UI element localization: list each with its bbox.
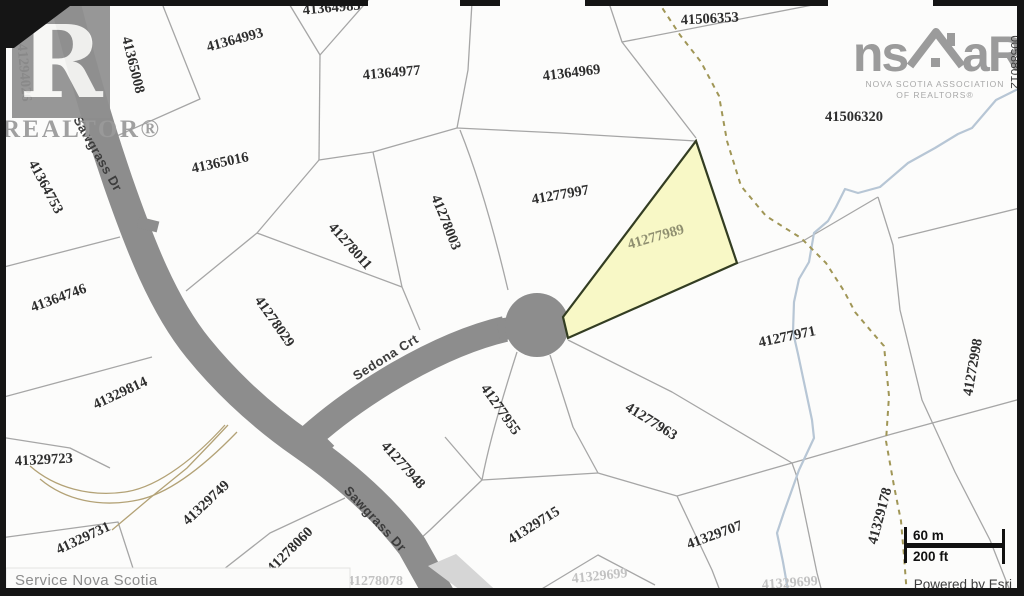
parcel-map: 41294026 41365008 41364993 41364985 4136…	[0, 0, 1024, 596]
cul-de-sac-bulb	[505, 293, 569, 357]
parcel-label: 41329723	[14, 450, 73, 469]
nsar-logo: ns aR NOVA SCOTIA ASSOCIATION OF REALTOR…	[853, 26, 1024, 100]
nsar-tagline-line1: NOVA SCOTIA ASSOCIATION	[866, 79, 1005, 89]
service-nova-scotia-label: Service Nova Scotia	[15, 572, 158, 589]
nsar-tagline-line2: OF REALTORS®	[896, 90, 973, 100]
parcel-label: 41506320	[825, 109, 883, 125]
house-chimney-icon	[947, 33, 955, 46]
nsar-wordmark-left: ns	[853, 26, 908, 82]
parcel-label: 41506353	[680, 9, 739, 28]
parcel-label-faded: 41278078	[347, 574, 403, 589]
driveway-stub	[138, 222, 158, 227]
scale-metric: 60 m	[913, 528, 944, 543]
house-door-icon	[931, 58, 940, 67]
realtor-wordmark: REALTOR®	[2, 116, 162, 143]
map-canvas: 41294026 41365008 41364993 41364985 4136…	[0, 0, 1024, 596]
scale-imperial: 200 ft	[913, 549, 949, 564]
